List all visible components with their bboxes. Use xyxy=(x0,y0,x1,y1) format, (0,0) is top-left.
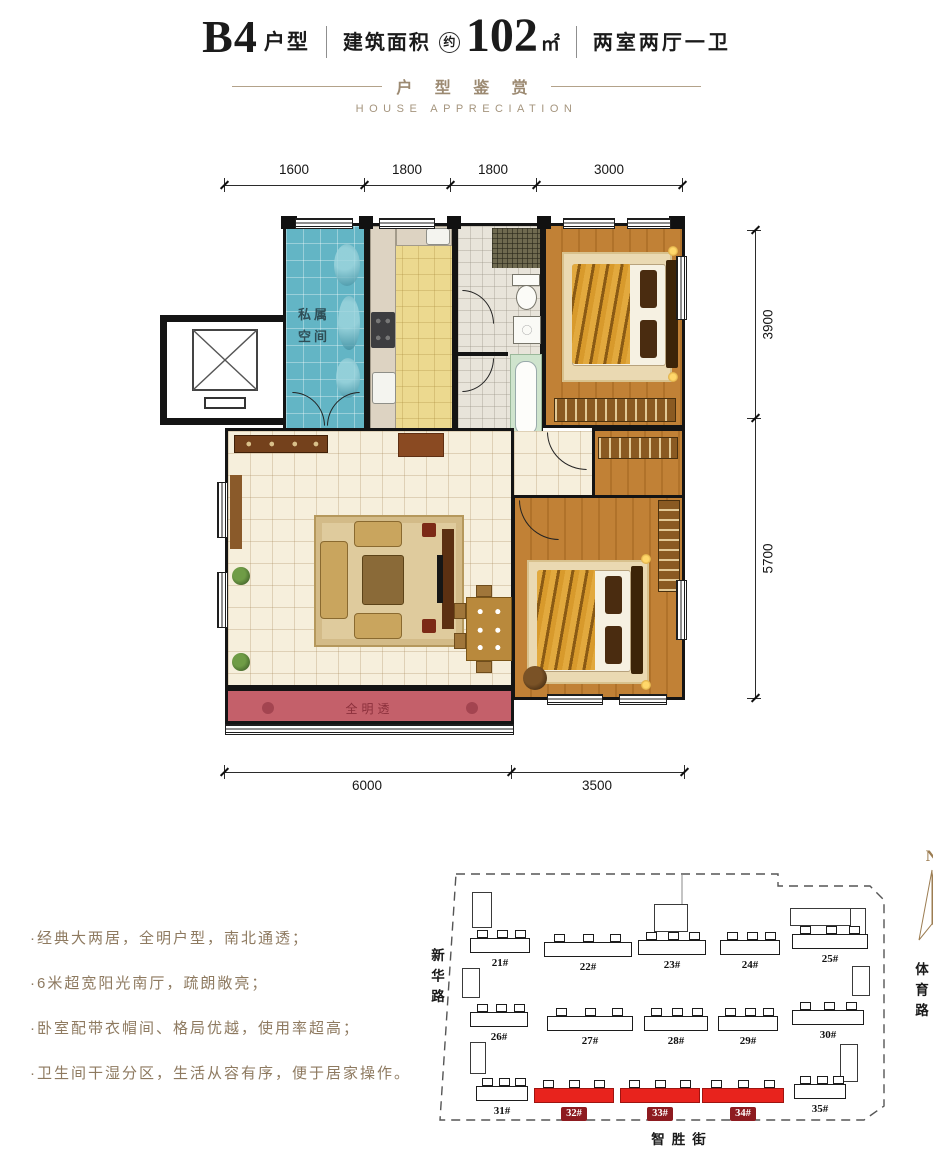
kitchen-sink xyxy=(426,228,450,245)
site-building: 21# xyxy=(470,938,530,971)
elevator-icon xyxy=(167,322,283,418)
room-bedroom-south xyxy=(512,495,685,700)
divider xyxy=(576,26,577,58)
feature-item: ·卫生间干湿分区，生活从容有序，便于居家操作。 xyxy=(30,1060,445,1087)
feature-list: ·经典大两居，全明户型，南北通透； ·6米超宽阳光南厅，疏朗敞亮； ·卧室配带衣… xyxy=(30,925,445,1105)
brochure-page: B4 户型 建筑面积 约 102 ㎡ 两室两厅一卫 户 型 鉴 赏 HOUSE … xyxy=(0,0,933,1150)
dim-top-4: 3000 xyxy=(577,162,641,177)
room-private-space: 私属 空间 xyxy=(283,223,367,431)
window xyxy=(217,572,228,628)
site-amenity xyxy=(462,968,480,998)
area-value: 102 xyxy=(466,12,538,60)
unit-model: B4 xyxy=(202,14,258,60)
area-unit: ㎡ xyxy=(541,29,560,56)
divider xyxy=(326,26,327,58)
sofa xyxy=(354,521,402,547)
unit-model-suffix: 户型 xyxy=(264,26,310,56)
site-amenity xyxy=(472,892,492,928)
subtitle-line-left xyxy=(232,86,382,87)
dim-bottom-2: 3500 xyxy=(565,778,629,793)
site-plan: 21# 22# 23# 24# 25# 26# 27# 28# 29# xyxy=(432,866,932,1150)
feature-item: ·卧室配带衣帽间、格局优越，使用率超高； xyxy=(30,1015,445,1042)
subtitle-row: 户 型 鉴 赏 xyxy=(0,74,933,98)
site-building: 24# xyxy=(720,940,780,973)
stove-icon xyxy=(371,312,395,348)
plant-icon xyxy=(232,653,250,671)
door-arc xyxy=(462,358,494,392)
bath-wet-zone xyxy=(510,354,542,442)
site-amenity xyxy=(654,904,688,932)
plant-icon xyxy=(232,567,250,585)
compass-n-label: N xyxy=(907,848,933,866)
header: B4 户型 建筑面积 约 102 ㎡ 两室两厅一卫 户 型 鉴 赏 HOUSE … xyxy=(0,12,933,115)
site-building-highlighted: 33# xyxy=(620,1088,700,1121)
subtitle-line-right xyxy=(551,86,701,87)
sofa xyxy=(320,541,348,619)
dim-top-3: 1800 xyxy=(461,162,525,177)
cloakroom-rail xyxy=(598,437,678,459)
site-building: 30# xyxy=(792,1010,864,1043)
washer-icon xyxy=(513,316,541,344)
window xyxy=(676,256,687,320)
approx-circle-icon: 约 xyxy=(439,32,460,53)
door-arc xyxy=(292,392,325,426)
dim-right-1: 3900 xyxy=(761,293,776,357)
window xyxy=(619,694,667,705)
balcony-window xyxy=(225,724,514,735)
door-arc xyxy=(327,392,360,426)
site-building-highlighted: 34# xyxy=(702,1088,784,1121)
subtitle-cn: 户 型 鉴 赏 xyxy=(396,74,536,98)
elevator-shaft xyxy=(160,315,290,425)
sofa xyxy=(354,613,402,639)
window xyxy=(563,218,615,229)
shower-area xyxy=(492,228,540,268)
floor-vase xyxy=(523,666,547,690)
road-label-east: 体育路 xyxy=(910,962,930,1024)
subtitle-en: HOUSE APPRECIATION xyxy=(0,103,933,115)
balcony: 全明透 xyxy=(225,688,514,724)
entry-mat xyxy=(398,433,444,457)
window xyxy=(627,218,671,229)
door-arc xyxy=(519,500,559,540)
site-amenity xyxy=(470,1042,486,1074)
dim-line-bottom xyxy=(224,772,684,773)
tv-cabinet xyxy=(442,529,454,629)
area-label: 建筑面积 xyxy=(343,26,431,55)
feature-item: ·经典大两居，全明户型，南北通透； xyxy=(30,925,445,952)
door-arc xyxy=(462,290,494,324)
tv-icon xyxy=(437,555,443,603)
title-row: B4 户型 建筑面积 约 102 ㎡ 两室两厅一卫 xyxy=(0,12,933,60)
site-building: 26# xyxy=(470,1012,528,1045)
window xyxy=(379,218,435,229)
room-kitchen xyxy=(367,223,455,436)
site-building: 22# xyxy=(544,942,632,975)
dim-top-2: 1800 xyxy=(375,162,439,177)
dim-line-top xyxy=(224,185,683,186)
room-living-dining xyxy=(225,428,514,688)
road-label-west: 新华路 xyxy=(426,948,446,1010)
wardrobe xyxy=(554,398,676,422)
dim-top-1: 1600 xyxy=(262,162,326,177)
site-amenity xyxy=(852,966,870,996)
site-building: 28# xyxy=(644,1016,708,1049)
feature-item: ·6米超宽阳光南厅，疏朗敞亮； xyxy=(30,970,445,997)
site-building: 35# xyxy=(794,1084,846,1117)
site-building: 29# xyxy=(718,1016,778,1049)
coffee-table xyxy=(362,555,404,605)
floor-plan: 1600 1800 1800 3000 3900 5700 6000 3500 xyxy=(155,152,820,824)
road-label-south: 智胜街 xyxy=(651,1128,713,1148)
site-building: 27# xyxy=(547,1016,633,1049)
dim-right-2: 5700 xyxy=(761,527,776,591)
room-cloakroom xyxy=(592,428,685,498)
room-layout: 两室两厅一卫 xyxy=(593,26,731,55)
dim-bottom-1: 6000 xyxy=(335,778,399,793)
site-building: 31# xyxy=(476,1086,528,1119)
room-bedroom-north xyxy=(543,223,685,428)
room-bathroom xyxy=(455,223,543,445)
site-building: 25# xyxy=(792,934,868,967)
site-building: 23# xyxy=(638,940,706,973)
cabinet xyxy=(230,475,242,549)
wardrobe xyxy=(658,500,680,592)
window xyxy=(547,694,603,705)
sideboard xyxy=(234,435,328,453)
window xyxy=(676,580,687,640)
room-label-private-space: 私属 空间 xyxy=(298,304,330,348)
window xyxy=(295,218,353,229)
window xyxy=(217,482,228,538)
dim-line-right xyxy=(755,230,756,698)
dining-table xyxy=(466,597,512,661)
site-building-highlighted: 32# xyxy=(534,1088,614,1121)
bath-partition-wall xyxy=(458,352,508,356)
